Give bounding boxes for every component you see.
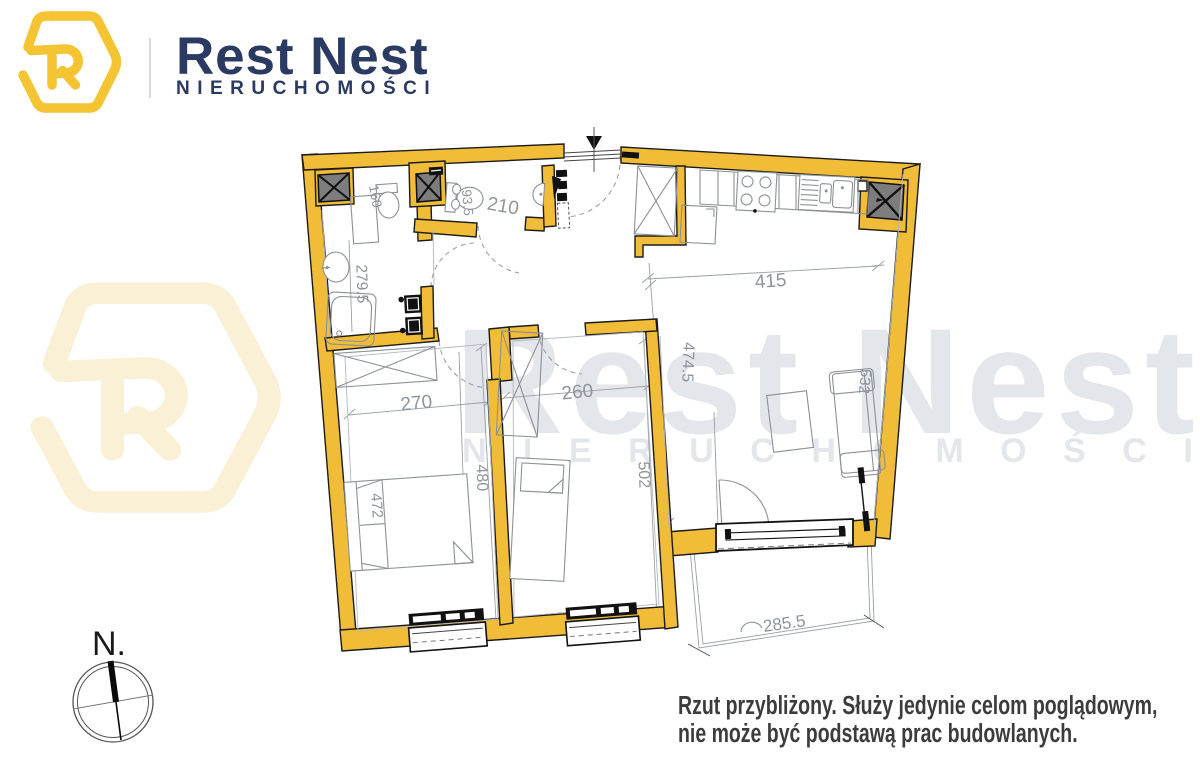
svg-text:Rzut przybliżony. Służy jedyni: Rzut przybliżony. Służy jedynie celom po… bbox=[678, 690, 1157, 719]
svg-text:NIERUCHOMOŚCI: NIERUCHOMOŚCI bbox=[462, 432, 1200, 470]
svg-text:472: 472 bbox=[367, 493, 386, 519]
svg-text:260: 260 bbox=[561, 380, 595, 404]
svg-text:nie może być podstawą prac bud: nie może być podstawą prac budowlanych. bbox=[678, 718, 1078, 747]
svg-text:474.5: 474.5 bbox=[678, 342, 696, 383]
svg-text:NIERUCHOMOŚCI: NIERUCHOMOŚCI bbox=[176, 77, 437, 99]
svg-text:N.: N. bbox=[92, 625, 126, 663]
svg-text:415: 415 bbox=[754, 270, 787, 293]
svg-text:532: 532 bbox=[855, 368, 874, 394]
svg-text:480: 480 bbox=[473, 464, 491, 491]
svg-text:502: 502 bbox=[635, 461, 653, 488]
svg-text:270: 270 bbox=[400, 391, 434, 415]
svg-text:279.5: 279.5 bbox=[352, 264, 370, 303]
svg-text:93.5: 93.5 bbox=[459, 189, 476, 216]
